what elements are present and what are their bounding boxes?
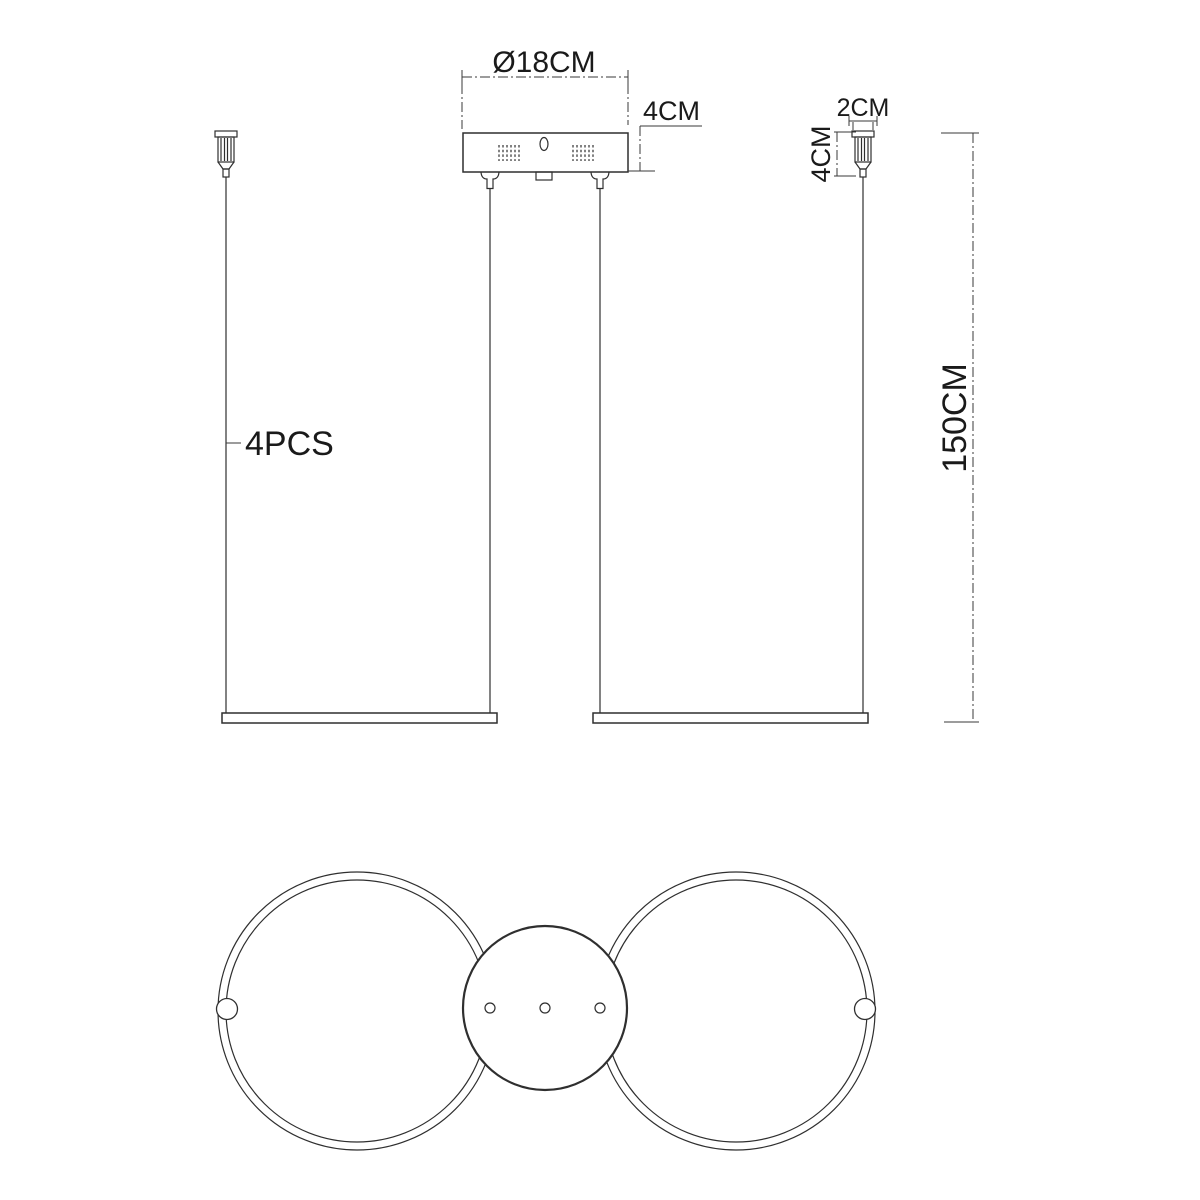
- ring-left-inner-edge: [226, 880, 488, 1142]
- dimension-canopy-diameter: Ø18CM: [462, 46, 628, 129]
- gripper-taper: [855, 162, 871, 169]
- technical-drawing-page: Ø18CM 4CM 2CM 4CM: [0, 0, 1200, 1200]
- pendant-light-dimension-diagram: Ø18CM 4CM 2CM 4CM: [0, 0, 1200, 1200]
- canopy-diameter-label: Ø18CM: [492, 46, 595, 79]
- annotation-gripper-quantity: 4PCS: [226, 425, 334, 463]
- ring-left: [218, 872, 496, 1150]
- ceiling-canopy: [463, 133, 628, 172]
- ring-right-inner-edge: [605, 880, 867, 1142]
- plan-view: [217, 872, 876, 1150]
- gripper-quantity-label: 4PCS: [245, 425, 334, 463]
- gripper-height-label: 4CM: [806, 125, 836, 182]
- ring-connector-right: [855, 999, 876, 1020]
- gripper-taper: [218, 162, 234, 169]
- canopy-mounting-tab: [536, 172, 552, 180]
- light-bar-right: [593, 713, 868, 723]
- ring-connector-left: [217, 999, 238, 1020]
- ring-right-outer-edge: [597, 872, 875, 1150]
- cable-bell-left: [481, 172, 499, 189]
- ring-right: [597, 872, 875, 1150]
- canopy-height-label: 4CM: [643, 96, 700, 126]
- gripper-nipple: [860, 169, 866, 177]
- dimension-suspension-length: 150CM: [936, 133, 979, 722]
- gripper-cap: [215, 131, 237, 137]
- ring-left-outer-edge: [218, 872, 496, 1150]
- gripper-width-label: 2CM: [837, 94, 890, 122]
- cable-gripper-right: [852, 131, 874, 713]
- cable-bell-right: [591, 172, 609, 189]
- gripper-nipple: [223, 169, 229, 177]
- dimension-canopy-height: 4CM: [628, 96, 702, 171]
- dimension-gripper-width: 2CM: [837, 94, 890, 130]
- dimension-gripper-height: 4CM: [806, 125, 856, 182]
- gripper-ribs: [858, 138, 868, 161]
- gripper-ribs: [221, 138, 231, 161]
- suspension-length-label: 150CM: [936, 363, 974, 473]
- canopy-disc: [463, 926, 627, 1090]
- cable-gripper-left: [215, 131, 237, 713]
- light-bar-left: [222, 713, 497, 723]
